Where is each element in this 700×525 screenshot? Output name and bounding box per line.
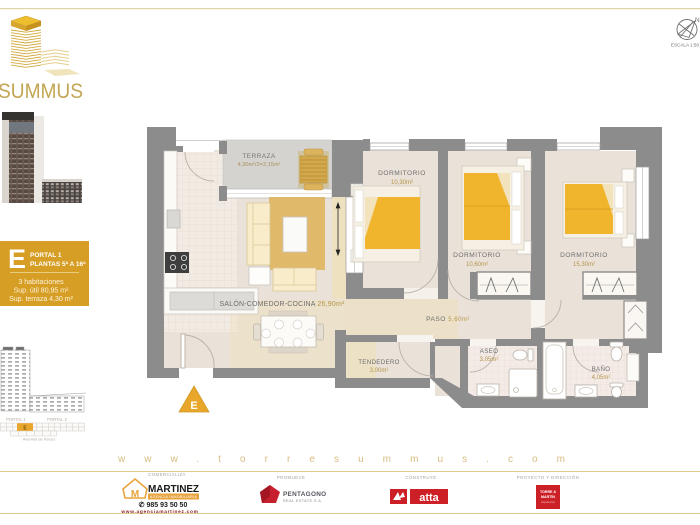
- svg-text:PORTAL 1: PORTAL 1: [30, 252, 62, 259]
- svg-text:PASO 5,60m²: PASO 5,60m²: [426, 316, 470, 323]
- svg-text:www.torresummus.com: www.torresummus.com: [117, 454, 565, 465]
- svg-text:arquitectos: arquitectos: [541, 500, 555, 504]
- svg-text:COMERCIALIZA: COMERCIALIZA: [148, 472, 186, 477]
- svg-text:✆ 985 93 50 50: ✆ 985 93 50 50: [139, 501, 188, 509]
- svg-text:PLANTAS 5ª A 16ª: PLANTAS 5ª A 16ª: [30, 261, 86, 268]
- svg-text:10,30m²: 10,30m²: [391, 180, 413, 186]
- svg-text:MARTÍN: MARTÍN: [541, 494, 555, 499]
- svg-text:ASEO: ASEO: [480, 348, 498, 355]
- svg-text:TORRE &: TORRE &: [540, 490, 557, 494]
- svg-text:Sup. útil 80,95 m²: Sup. útil 80,95 m²: [14, 288, 70, 295]
- svg-text:N: N: [695, 17, 700, 24]
- svg-text:PENTAGONO: PENTAGONO: [283, 491, 326, 498]
- svg-text:SALÓN-COMEDOR-COCINA 26,90m²: SALÓN-COMEDOR-COCINA 26,90m²: [219, 299, 344, 308]
- svg-text:atta: atta: [419, 492, 439, 504]
- svg-text:BAÑO: BAÑO: [592, 366, 611, 373]
- svg-text:REAL ESTATE S.A.: REAL ESTATE S.A.: [283, 499, 323, 503]
- svg-text:CONSTRUYE: CONSTRUYE: [405, 475, 436, 480]
- svg-text:10,60m²: 10,60m²: [466, 262, 488, 268]
- svg-text:E: E: [190, 400, 197, 412]
- svg-text:3 habitaciones: 3 habitaciones: [18, 279, 64, 286]
- svg-text:E: E: [8, 244, 26, 274]
- svg-text:SUMMUS: SUMMUS: [0, 79, 83, 103]
- svg-text:AGENCIA INMOBILIARIA: AGENCIA INMOBILIARIA: [150, 495, 197, 499]
- svg-text:M: M: [131, 489, 139, 500]
- svg-text:PROMUEVE: PROMUEVE: [277, 475, 305, 480]
- svg-text:Sup. terraza 4,30 m²: Sup. terraza 4,30 m²: [9, 296, 73, 303]
- svg-text:3,00m²: 3,00m²: [370, 368, 389, 374]
- svg-text:4,30m²/2=2,15m²: 4,30m²/2=2,15m²: [238, 162, 281, 168]
- svg-text:DORMITORIO: DORMITORIO: [453, 252, 501, 259]
- svg-text:3,05m²: 3,05m²: [480, 357, 499, 363]
- svg-text:MARTINEZ: MARTINEZ: [148, 484, 199, 495]
- svg-text:PROYECTO Y DIRECCIÓN: PROYECTO Y DIRECCIÓN: [517, 475, 579, 480]
- svg-text:4,05m²: 4,05m²: [592, 375, 611, 381]
- svg-text:PORTAL 2: PORTAL 2: [47, 417, 67, 422]
- svg-text:DORMITORIO: DORMITORIO: [560, 252, 608, 259]
- svg-text:15,30m²: 15,30m²: [573, 262, 595, 268]
- svg-text:ESCALA 1:50: ESCALA 1:50: [671, 43, 700, 48]
- svg-text:Avenida de Roces: Avenida de Roces: [23, 437, 55, 442]
- svg-text:DORMITORIO: DORMITORIO: [378, 170, 426, 177]
- svg-text:PORTAL 1: PORTAL 1: [6, 417, 26, 422]
- svg-text:TENDEDERO: TENDEDERO: [358, 359, 400, 366]
- svg-text:TERRAZA: TERRAZA: [242, 153, 275, 160]
- svg-text:www.agenciamartinez.com: www.agenciamartinez.com: [120, 509, 198, 515]
